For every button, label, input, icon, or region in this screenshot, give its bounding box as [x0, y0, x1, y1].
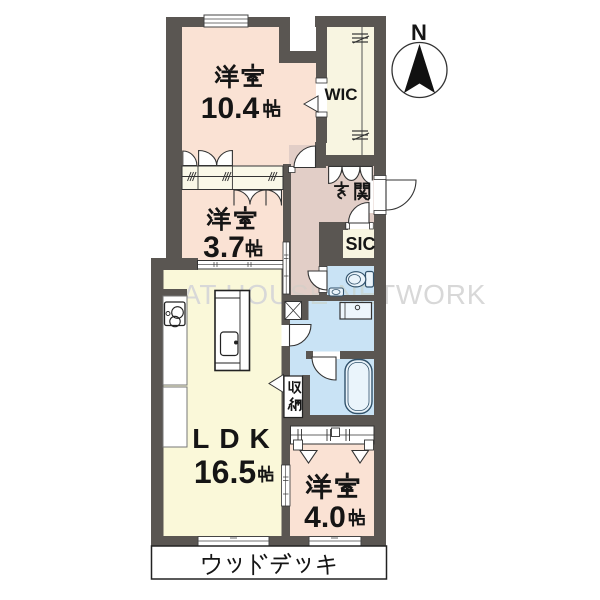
svg-text:LDK: LDK: [192, 423, 280, 454]
svg-text:16.5: 16.5: [194, 454, 256, 490]
svg-text:4.0: 4.0: [304, 501, 346, 534]
svg-text:SIC: SIC: [345, 234, 375, 254]
svg-text:WIC: WIC: [324, 85, 357, 104]
svg-text:10.4: 10.4: [201, 92, 260, 125]
svg-text:3.7: 3.7: [203, 231, 245, 264]
svg-text:N: N: [411, 20, 427, 45]
